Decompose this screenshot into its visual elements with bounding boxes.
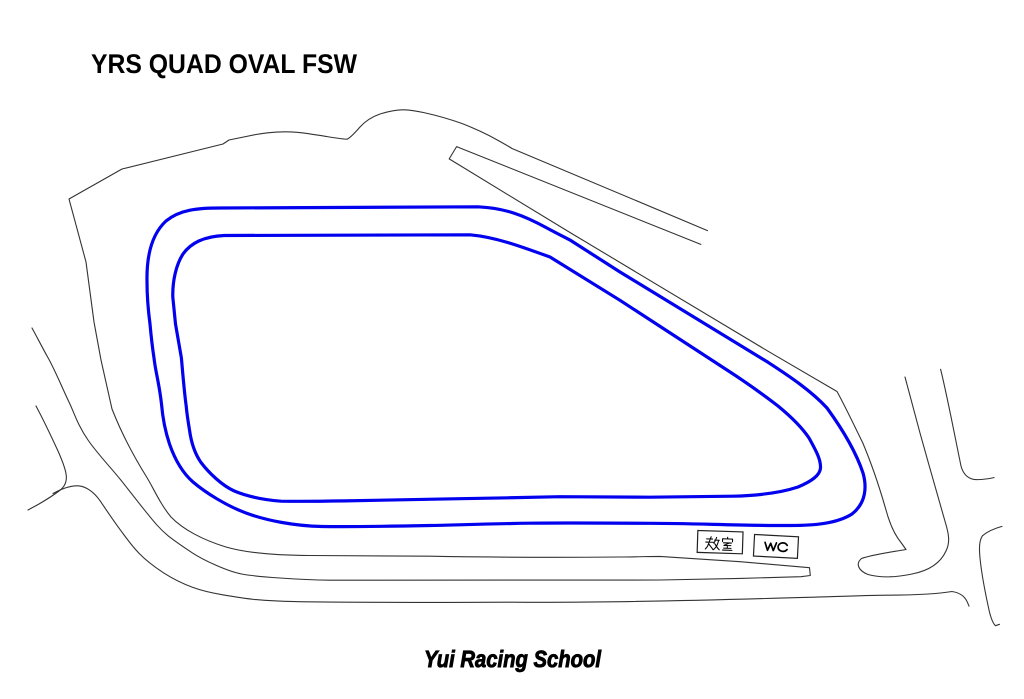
svg-text:Yui Racing School: Yui Racing School xyxy=(424,646,601,672)
svg-text:YRS QUAD OVAL FSW: YRS QUAD OVAL FSW xyxy=(91,49,357,79)
